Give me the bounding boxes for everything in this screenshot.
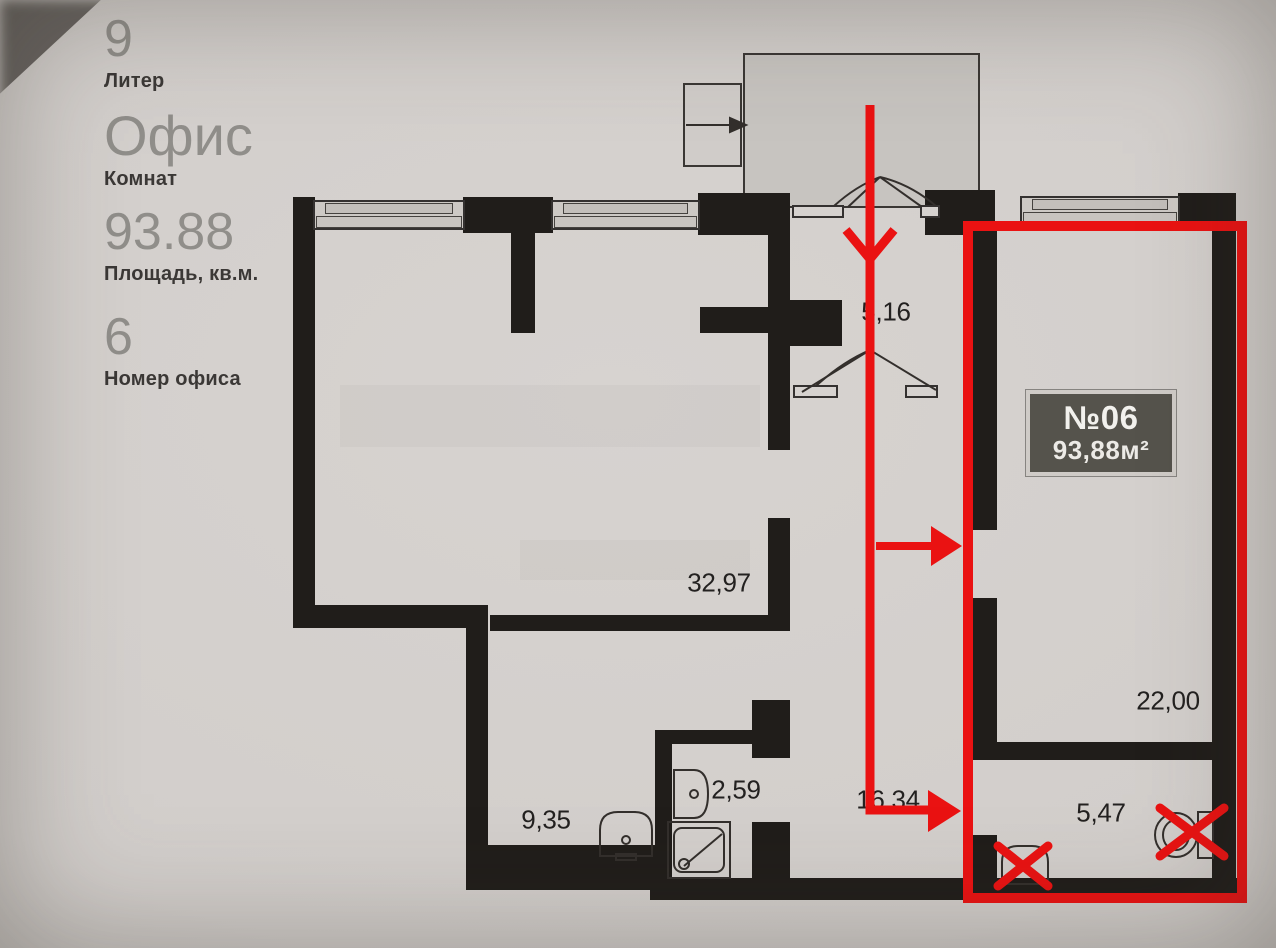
red-mid-arrowhead (931, 526, 962, 566)
red-highlight-rect (968, 226, 1242, 898)
red-annotations (0, 0, 1276, 948)
red-route-arrowhead (928, 790, 961, 832)
red-x-mark (998, 846, 1048, 886)
floorplan-photo: 9 Литер Офис Комнат 93.88 Площадь, кв.м.… (0, 0, 1276, 948)
red-x-mark (1160, 808, 1224, 856)
red-route-line (870, 105, 930, 810)
